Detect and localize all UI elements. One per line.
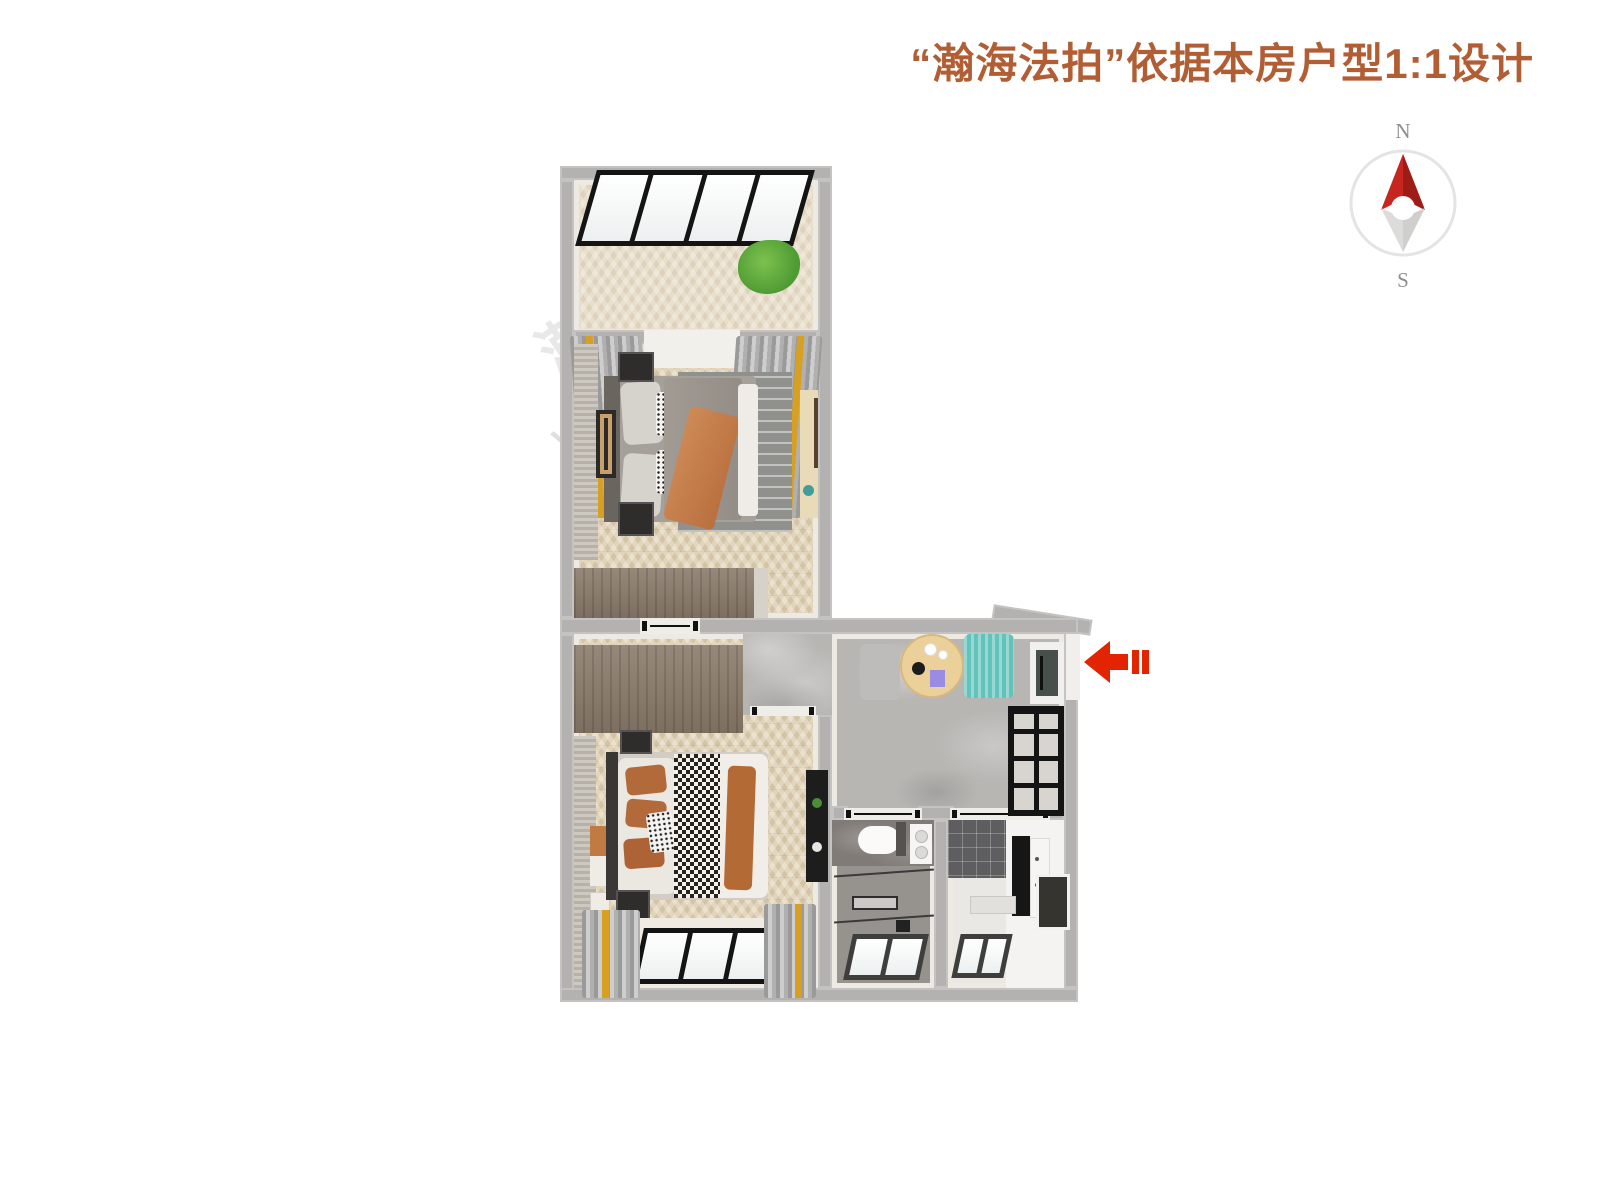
wardrobe: [574, 645, 743, 733]
desk-black: [806, 770, 828, 882]
desk: [800, 390, 818, 518]
wardrobe-end: [754, 568, 768, 618]
vase-icon: [803, 485, 814, 496]
wall-east-upper: [818, 180, 832, 618]
compass: N S: [1346, 120, 1460, 292]
compass-south-label: S: [1346, 269, 1460, 291]
compass-north-label: N: [1346, 120, 1460, 142]
curtain: [764, 904, 816, 998]
plant-icon: [812, 798, 822, 808]
towel-bar: [852, 896, 898, 910]
kitchen-counter: [970, 896, 1016, 914]
plate-icon: [938, 650, 948, 660]
napkin-icon: [930, 670, 945, 687]
vestibule-floor: [743, 634, 832, 715]
bedroom-south-door-sill: [750, 706, 816, 716]
bathroom-window: [843, 934, 929, 980]
nightstand: [618, 502, 654, 536]
wall-west-upper: [560, 180, 574, 618]
wall-middle: [560, 618, 1078, 634]
dining-chair-teal: [964, 634, 1014, 698]
floor-plan: [560, 166, 1080, 1006]
bedroom-north-window-sill: [644, 330, 740, 368]
page-title: “瀚海法拍”依据本房户型1:1设计: [910, 30, 1534, 91]
sink-icon: [915, 830, 928, 843]
pillow-orange: [625, 764, 668, 796]
dining-chair-gray: [860, 644, 900, 700]
plate-icon: [924, 643, 937, 656]
nightstand: [620, 730, 652, 754]
wall-bath-kitchen: [934, 820, 948, 988]
shoe-cabinet: [1008, 706, 1064, 816]
dining-table: [900, 634, 964, 698]
wall-hall-bath-b: [918, 806, 954, 820]
toilet: [858, 826, 900, 854]
wall-art: [596, 410, 616, 478]
wall-west-lower: [560, 634, 574, 1002]
shower-head-icon: [896, 920, 910, 932]
tv-panel: [1030, 642, 1064, 704]
bed-checkered-throw: [674, 754, 722, 898]
toilet-cistern: [896, 822, 906, 856]
bathroom-vanity: [910, 824, 932, 864]
bed-foot-mattress: [738, 384, 758, 516]
sink-icon: [915, 846, 928, 859]
bathroom-door-sill: [844, 808, 922, 820]
cabinet-niche: [1036, 874, 1070, 930]
compass-needle-icon: [1346, 142, 1460, 264]
bedroom-south-window: [632, 928, 784, 984]
balcony-window: [575, 170, 815, 246]
entrance-door: [1064, 634, 1080, 700]
bed-headboard: [606, 752, 618, 900]
curtain: [582, 910, 640, 998]
entrance-arrow-icon: [1084, 634, 1150, 690]
wall-slat-panel: [574, 344, 598, 560]
bed-blanket-orange: [724, 766, 756, 891]
wardrobe: [574, 568, 754, 618]
kitchen-window: [951, 934, 1012, 978]
pillow-patterned: [645, 810, 676, 853]
bedroom-north-door-sill: [640, 618, 700, 634]
floor-plan-page: 瀚海法拍 www.fanai.cn 瀚海法拍 www.fanai.cn “瀚海法…: [0, 0, 1600, 1200]
bowl-icon: [912, 662, 925, 675]
nightstand: [618, 352, 654, 382]
kitchen-dark-tile: [948, 820, 1006, 878]
